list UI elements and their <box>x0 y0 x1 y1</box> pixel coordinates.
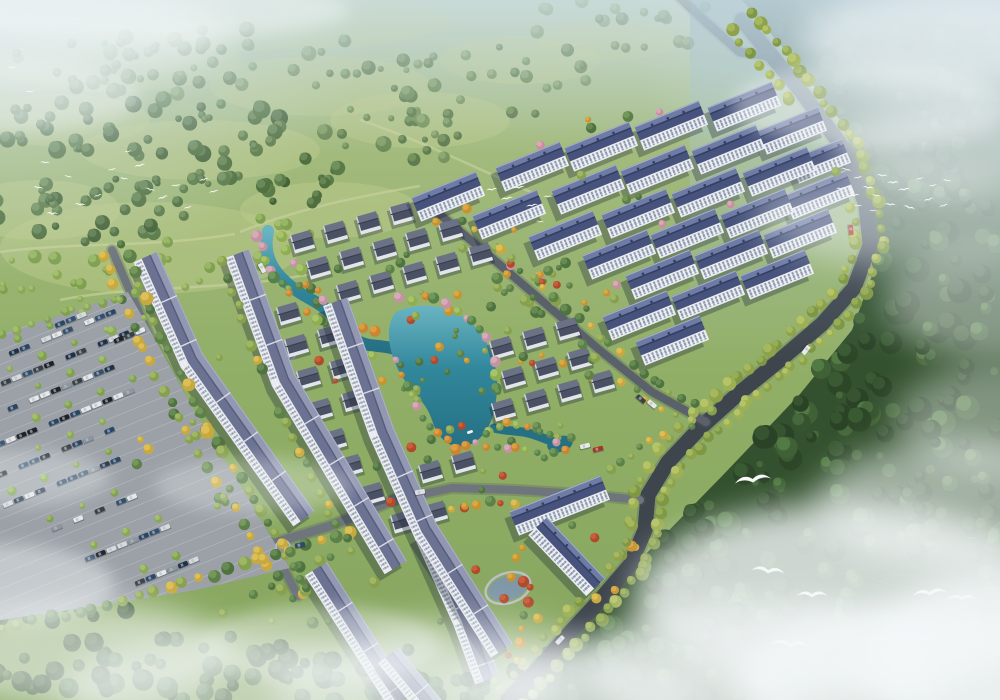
tree-highlight <box>132 459 138 465</box>
tree-highlight <box>585 622 591 628</box>
tree-highlight <box>259 242 265 248</box>
tree-highlight <box>282 418 288 424</box>
tree-highlight <box>252 554 259 561</box>
apartment-building-roof-stack <box>568 187 571 190</box>
tree-highlight <box>476 326 481 331</box>
tree-highlight <box>386 497 392 503</box>
tree-highlight <box>276 584 283 591</box>
tree-highlight <box>503 270 508 275</box>
tree-highlight <box>617 378 622 383</box>
tree-highlight <box>499 472 504 477</box>
tree-highlight <box>796 316 804 324</box>
tree-highlight <box>434 429 439 434</box>
tree-highlight <box>386 265 392 271</box>
tree-highlight <box>183 379 191 387</box>
tree-highlight <box>413 385 418 390</box>
tree-highlight <box>196 408 203 415</box>
tree-highlight <box>448 506 452 510</box>
tree-highlight <box>591 353 597 359</box>
tree-highlight <box>636 194 640 198</box>
tree-highlight <box>118 596 125 603</box>
tree-highlight <box>69 307 73 311</box>
cluster-building-roof-stack <box>589 569 592 572</box>
tree-highlight <box>99 251 106 258</box>
tree-highlight <box>773 478 781 486</box>
tree-highlight <box>660 431 665 436</box>
apartment-building-roof-stack <box>719 281 722 284</box>
apartment-building-roof-stack <box>774 163 777 166</box>
tree-highlight <box>79 503 83 507</box>
tree-highlight <box>97 388 102 393</box>
tree-highlight <box>559 360 564 365</box>
tree-highlight <box>727 201 732 206</box>
tree-highlight <box>544 266 550 272</box>
tree-highlight <box>627 520 634 527</box>
apartment-building-roof-stack <box>673 260 676 263</box>
tree-highlight <box>807 306 814 313</box>
tree-highlight <box>99 356 104 361</box>
tree-highlight <box>508 437 513 442</box>
apartment-building-roof-stack <box>581 144 584 147</box>
tree-highlight <box>28 321 33 326</box>
tree-highlight <box>747 8 754 15</box>
tree-highlight <box>695 443 703 451</box>
tree-highlight <box>539 353 542 356</box>
tree-highlight <box>18 286 23 291</box>
tree-highlight <box>178 370 183 375</box>
tree-highlight <box>527 584 531 588</box>
tree-highlight <box>575 313 581 319</box>
tree-highlight <box>312 315 319 322</box>
tree-highlight <box>666 390 670 394</box>
tree-highlight <box>577 171 583 177</box>
tree-highlight <box>237 314 243 320</box>
tree-highlight <box>812 359 825 372</box>
apartment-building-roof-stack <box>459 182 462 185</box>
tree-highlight <box>422 292 427 297</box>
tree-highlight <box>135 282 141 288</box>
tree-highlight <box>35 383 39 387</box>
tree-highlight <box>125 309 131 315</box>
tree-highlight <box>785 362 791 368</box>
tree-highlight <box>212 437 220 445</box>
tree-highlight <box>189 397 196 404</box>
tree-highlight <box>567 433 573 439</box>
tree-highlight <box>62 307 68 313</box>
tree-highlight <box>394 292 401 299</box>
tree-highlight <box>289 433 295 439</box>
tree-highlight <box>524 424 528 428</box>
tree-highlight <box>479 388 483 392</box>
apartment-building-roof-stack <box>711 252 714 255</box>
tree-highlight <box>836 391 843 398</box>
apartment-building-roof-stack <box>527 158 530 161</box>
tree-highlight <box>416 358 421 363</box>
apartment-building-roof-stack <box>520 200 523 203</box>
tree-highlight <box>155 515 160 520</box>
aerial-render-canvas <box>0 0 1000 700</box>
tree-highlight <box>373 462 378 467</box>
tree-highlight <box>868 268 874 274</box>
tree-highlight <box>408 296 414 302</box>
tree-highlight <box>537 428 541 432</box>
tree-highlight <box>407 443 413 449</box>
apartment-building-roof-stack <box>630 240 633 243</box>
tree-highlight <box>451 444 458 451</box>
apartment-building-roof-stack <box>489 212 492 215</box>
apartment-building-roof-stack <box>619 313 622 316</box>
tree-highlight <box>325 510 330 515</box>
tree-highlight <box>190 419 194 423</box>
tree-highlight <box>710 389 719 398</box>
tree-highlight <box>246 340 253 347</box>
tree-highlight <box>561 258 568 265</box>
tree-highlight <box>345 526 353 534</box>
tree-highlight <box>399 372 403 376</box>
apartment-building-roof-stack <box>657 266 660 269</box>
tree-highlight <box>613 281 618 286</box>
cluster-building-roof-stack <box>542 502 545 505</box>
tree-highlight <box>520 545 524 549</box>
apartment-building-roof-stack <box>683 326 686 329</box>
tree-highlight <box>182 283 187 288</box>
tree-highlight <box>610 295 616 301</box>
tree-highlight <box>806 432 813 439</box>
tree-highlight <box>684 504 696 516</box>
tree-highlight <box>420 415 424 419</box>
tree-highlight <box>753 390 759 396</box>
apartment-building-roof-stack <box>504 206 507 209</box>
cluster-building-roof-stack <box>577 556 580 559</box>
tree-highlight <box>539 279 543 283</box>
tree-highlight <box>217 256 223 262</box>
tree-highlight <box>420 378 423 381</box>
tree-highlight <box>501 289 505 293</box>
tree-highlight <box>122 528 127 533</box>
apartment-building-roof-stack <box>583 181 586 184</box>
tree-highlight <box>146 305 152 311</box>
tree-highlight <box>131 289 137 295</box>
apartment-building-roof-stack <box>739 135 742 138</box>
tree-highlight <box>649 538 657 546</box>
tree-highlight <box>473 439 477 443</box>
aerial-site-render: Aerial architectural rendering of a larg… <box>0 0 1000 700</box>
tree-highlight <box>553 438 558 443</box>
tree-highlight <box>192 431 198 437</box>
tree-highlight <box>766 70 772 76</box>
tree-highlight <box>239 519 246 526</box>
tree-highlight <box>578 340 584 346</box>
cluster-building-roof-stack <box>589 484 592 487</box>
tree-highlight <box>616 458 621 463</box>
tree-highlight <box>164 345 170 351</box>
tree-highlight <box>792 413 804 425</box>
tree-highlight <box>872 377 885 390</box>
tree-highlight <box>32 414 38 420</box>
tree-highlight <box>65 401 70 406</box>
tree-highlight <box>762 25 768 31</box>
apartment-building-roof-stack <box>633 205 636 208</box>
tree-highlight <box>479 487 483 491</box>
tree-highlight <box>29 286 33 290</box>
tree-highlight <box>278 538 285 545</box>
tree-highlight <box>404 252 408 256</box>
tree-highlight <box>848 408 863 423</box>
tree-highlight <box>71 340 75 344</box>
tree-highlight <box>296 575 301 580</box>
apartment-building-roof-stack <box>652 161 655 164</box>
tree-highlight <box>45 316 49 320</box>
tree-highlight <box>620 588 626 594</box>
tree-highlight <box>490 369 497 376</box>
tree-highlight <box>492 273 499 280</box>
tree-highlight <box>296 264 303 271</box>
tree-highlight <box>90 541 95 546</box>
tree-highlight <box>586 123 592 129</box>
tree-highlight <box>597 334 602 339</box>
tree-highlight <box>253 546 259 552</box>
tree-highlight <box>851 298 858 305</box>
tree-highlight <box>464 358 468 362</box>
tree-highlight <box>674 423 681 430</box>
tree-highlight <box>194 450 200 456</box>
tree-highlight <box>558 423 562 427</box>
tree-highlight <box>707 406 713 412</box>
tree-highlight <box>763 344 772 353</box>
tree-highlight <box>651 376 657 382</box>
tree-highlight <box>147 585 154 592</box>
tree-highlight <box>654 529 659 534</box>
tree-highlight <box>182 426 188 432</box>
apartment-building-roof-stack <box>703 287 706 290</box>
tree-highlight <box>111 296 116 301</box>
tree-highlight <box>393 357 397 361</box>
tree-highlight <box>135 591 141 597</box>
tree-highlight <box>137 436 141 440</box>
tree-highlight <box>186 435 191 440</box>
tree-highlight <box>490 356 497 363</box>
tree-highlight <box>611 586 616 591</box>
tree-highlight <box>667 479 673 485</box>
tree-highlight <box>540 284 544 288</box>
tree-highlight <box>224 274 230 280</box>
apartment-building-roof-stack <box>612 132 615 135</box>
tree-highlight <box>517 268 521 272</box>
tree-highlight <box>788 53 797 62</box>
apartment-building-roof-stack <box>719 178 722 181</box>
tree-highlight <box>38 351 44 357</box>
tree-highlight <box>586 117 590 121</box>
tree-highlight <box>511 443 517 449</box>
apartment-building-roof-stack <box>545 233 548 236</box>
tree-highlight <box>630 360 636 366</box>
tree-highlight <box>816 300 823 307</box>
tree-highlight <box>482 333 488 339</box>
tree-highlight <box>209 570 217 578</box>
tree-highlight <box>268 583 273 588</box>
tree-highlight <box>839 274 845 280</box>
apartment-building-roof-stack <box>742 240 745 243</box>
tree-highlight <box>467 316 473 322</box>
tree-highlight <box>520 295 527 302</box>
cluster-building-roof-stack <box>557 496 560 499</box>
tree-highlight <box>724 419 730 425</box>
tree-highlight <box>302 583 308 589</box>
tree-highlight <box>424 456 429 461</box>
apartment-building-roof-stack <box>821 150 824 153</box>
tree-highlight <box>264 519 269 524</box>
tree-highlight <box>149 317 154 322</box>
tree-highlight <box>641 553 648 560</box>
apartment-building-roof-stack <box>703 184 706 187</box>
tree-highlight <box>472 226 476 230</box>
tree-highlight <box>172 552 178 558</box>
tree-highlight <box>111 489 116 494</box>
tree-highlight <box>671 466 679 474</box>
mist-cloud <box>155 457 355 513</box>
tree-highlight <box>482 348 486 352</box>
tree-highlight <box>483 430 488 435</box>
apartment-building-roof-stack <box>682 225 685 228</box>
tree-highlight <box>592 593 598 599</box>
tree-highlight <box>253 356 259 362</box>
tree-highlight <box>519 352 525 358</box>
tree-highlight <box>462 204 468 210</box>
tree-highlight <box>634 386 638 390</box>
tree-highlight <box>497 500 501 504</box>
tree-highlight <box>550 448 556 454</box>
tree-highlight <box>239 557 247 565</box>
tree-highlight <box>604 603 610 609</box>
tree-highlight <box>566 282 570 286</box>
tree-highlight <box>557 617 563 623</box>
tree-highlight <box>462 503 467 508</box>
apartment-building-roof-stack <box>637 167 640 170</box>
tree-highlight <box>659 220 664 225</box>
apartment-building-roof-stack <box>512 164 515 167</box>
tree-highlight <box>531 274 536 279</box>
tree-highlight <box>867 280 872 285</box>
tree-highlight <box>144 444 150 450</box>
tree-highlight <box>691 399 697 405</box>
tree-highlight <box>661 487 667 493</box>
tree-highlight <box>454 307 460 313</box>
tree-highlight <box>378 377 383 382</box>
tree-highlight <box>757 356 763 362</box>
tree-highlight <box>604 290 608 294</box>
apartment-building-roof-stack <box>688 190 691 193</box>
tree-highlight <box>496 244 502 250</box>
tree-highlight <box>656 508 663 515</box>
apartment-building-roof-stack <box>772 266 775 269</box>
tree-highlight <box>315 555 322 562</box>
tree-highlight <box>368 351 374 357</box>
tree-highlight <box>782 46 788 52</box>
tree-highlight <box>117 240 122 245</box>
tree-highlight <box>141 315 145 319</box>
tree-highlight <box>35 445 39 449</box>
tree-highlight <box>529 360 533 364</box>
tree-highlight <box>271 549 278 556</box>
tree-highlight <box>14 335 19 340</box>
tree-highlight <box>281 245 287 251</box>
apartment-building-roof-stack <box>790 157 793 160</box>
tree-highlight <box>138 343 144 349</box>
apartment-building-roof-stack <box>757 272 760 275</box>
tree-highlight <box>315 287 319 291</box>
tree-highlight <box>546 431 551 436</box>
tree-highlight <box>511 500 517 506</box>
tree-highlight <box>744 364 751 371</box>
tree-highlight <box>755 425 770 440</box>
tree-highlight <box>841 266 846 271</box>
tree-highlight <box>106 449 110 453</box>
tree-highlight <box>290 259 295 264</box>
tree-highlight <box>640 369 646 375</box>
tree-highlight <box>228 288 234 294</box>
tree-highlight <box>656 109 661 114</box>
tree-highlight <box>834 319 841 326</box>
tree-highlight <box>348 547 353 552</box>
tree-highlight <box>745 48 752 55</box>
tree-highlight <box>530 294 534 298</box>
tree-highlight <box>512 227 515 230</box>
tree-highlight <box>303 281 307 285</box>
tree-highlight <box>130 266 138 274</box>
tree-highlight <box>77 296 81 300</box>
apartment-building-roof-stack <box>560 227 563 230</box>
apartment-building-roof-stack <box>698 219 701 222</box>
tree-highlight <box>396 258 402 264</box>
tree-highlight <box>304 308 309 313</box>
tree-highlight <box>333 378 336 381</box>
apartment-building-roof-stack <box>667 332 670 335</box>
tree-highlight <box>427 423 432 428</box>
tree-highlight <box>124 250 132 258</box>
tree-highlight <box>585 371 591 377</box>
tree-highlight <box>318 536 324 542</box>
tree-highlight <box>590 533 596 539</box>
apartment-building-roof-stack <box>618 211 621 214</box>
tree-highlight <box>646 437 650 441</box>
tree-highlight <box>290 595 295 600</box>
cluster-building-roof-stack <box>566 544 569 547</box>
tree-highlight <box>507 284 512 289</box>
tree-highlight <box>563 605 571 613</box>
tree-highlight <box>99 299 105 305</box>
tree-highlight <box>504 444 510 450</box>
tree-highlight <box>196 278 200 282</box>
tree-highlight <box>637 477 642 482</box>
tree-highlight <box>457 350 462 355</box>
tree-highlight <box>398 362 402 366</box>
tree-highlight <box>116 296 120 300</box>
tree-highlight <box>500 594 506 600</box>
tree-highlight <box>758 492 769 503</box>
tree-highlight <box>773 38 778 43</box>
tree-highlight <box>494 283 499 288</box>
tree-highlight <box>271 529 276 534</box>
tree-highlight <box>755 61 761 67</box>
apartment-building-roof-stack <box>576 221 579 224</box>
tree-highlight <box>458 422 463 427</box>
tree-highlight <box>860 287 868 295</box>
tree-highlight <box>296 282 301 287</box>
tree-highlight <box>166 582 174 590</box>
tree-highlight <box>176 577 183 584</box>
tree-highlight <box>159 386 166 393</box>
tree-highlight <box>446 426 451 431</box>
